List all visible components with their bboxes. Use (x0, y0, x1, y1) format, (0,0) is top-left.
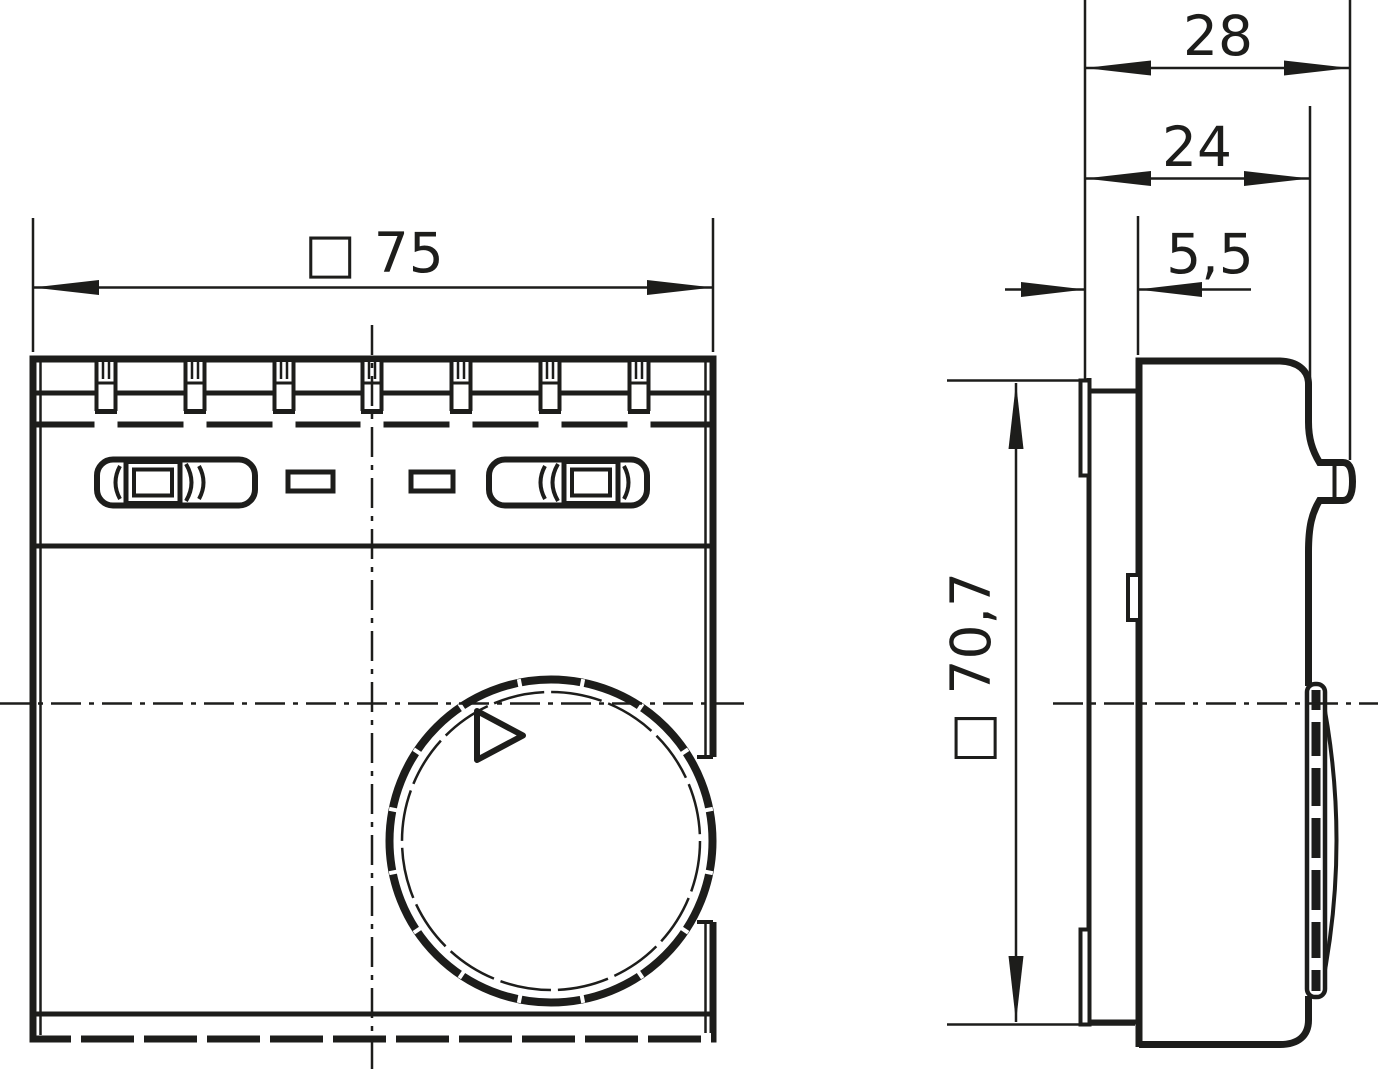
housing-profile-lower (1139, 996, 1309, 1045)
snap-slot (628, 362, 651, 432)
setpoint-dial (389, 679, 713, 1003)
mounting-tab-top (1081, 381, 1090, 476)
snap-slot (95, 362, 118, 432)
side-plate-offset-label: 5,5 (1166, 222, 1253, 286)
arrowhead-bottom (1009, 956, 1024, 1022)
dimensional-drawing-page: □ 75 (0, 0, 1378, 1075)
arrowhead-right (1244, 171, 1310, 186)
arrowhead-right (1284, 61, 1350, 76)
mounting-tab-bottom (1081, 930, 1090, 1025)
slider-switch-left (97, 460, 255, 506)
snap-slot (273, 362, 296, 432)
arrowhead-left (1021, 282, 1085, 297)
arrowhead-left (33, 280, 99, 295)
side-plate-offset-dimension: 5,5 (1005, 222, 1254, 297)
arrowhead-right (647, 280, 713, 295)
arrowhead-left (1085, 61, 1151, 76)
retaining-clip (1128, 575, 1140, 620)
snap-slot (539, 362, 562, 432)
wall-plate (1081, 378, 1139, 1025)
led-window-left (288, 472, 333, 491)
front-width-label: □ 75 (304, 221, 443, 285)
dimensional-drawing: □ 75 (0, 0, 1378, 1075)
snap-slot (184, 362, 207, 432)
side-total-depth-label: 28 (1183, 4, 1253, 68)
slider-switch-right (489, 460, 647, 506)
side-body-depth-label: 24 (1162, 115, 1232, 179)
side-view: 28 24 5,5 □ 70,7 (939, 0, 1378, 1047)
housing-profile-upper (1139, 361, 1353, 686)
arrowhead-left (1085, 171, 1151, 186)
front-view: □ 75 (0, 218, 747, 1075)
arrowhead-top (1009, 383, 1024, 449)
thumbwheel (1307, 684, 1337, 997)
side-total-depth-dimension: 28 (1085, 4, 1350, 76)
snap-slot (450, 362, 473, 432)
side-height-label: □ 70,7 (939, 572, 1003, 764)
dial-outer-ring (390, 680, 713, 1003)
side-body-depth-dimension: 24 (1085, 115, 1310, 186)
led-window-right (411, 472, 453, 491)
